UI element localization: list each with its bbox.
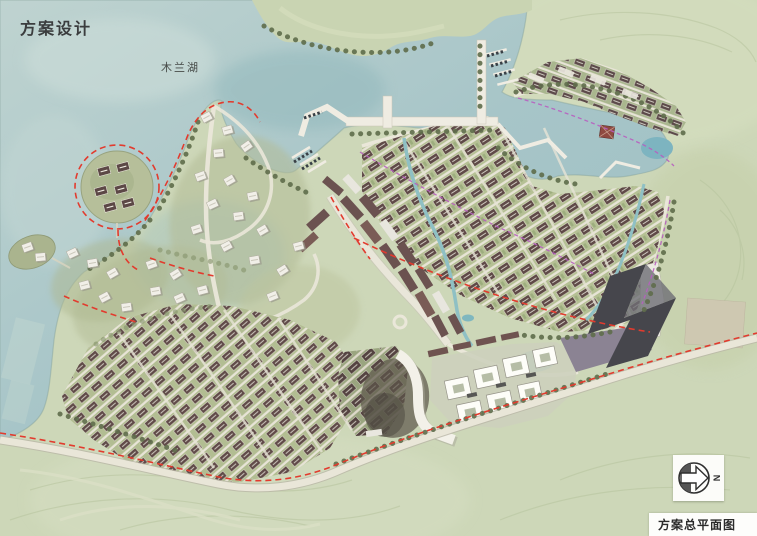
master-plan-canvas: 方案设计 木兰湖 N 方案总平面图 (0, 0, 757, 536)
lake-pavilion (599, 125, 615, 139)
compass: N (673, 455, 724, 501)
site-plan-drawing (0, 0, 757, 536)
lake-label: 木兰湖 (161, 59, 200, 75)
compass-north-label: N (712, 475, 722, 482)
plan-caption-text: 方案总平面图 (649, 516, 736, 533)
north-arrow-icon (677, 461, 711, 495)
plan-caption: 方案总平面图 (649, 513, 757, 536)
page-title: 方案设计 (20, 15, 92, 39)
